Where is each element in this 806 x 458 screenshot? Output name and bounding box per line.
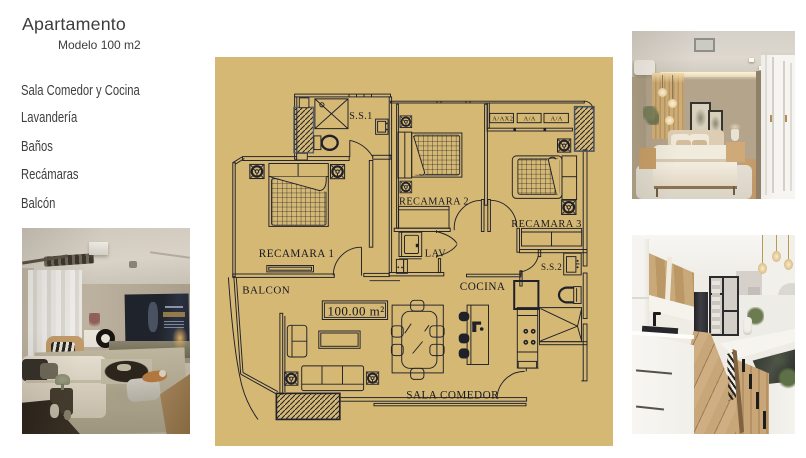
svg-text:SALA COMEDOR: SALA COMEDOR [406,389,499,401]
svg-text:S.S.2: S.S.2 [541,262,562,272]
svg-text:A/AX2: A/AX2 [492,116,513,123]
svg-text:A/A: A/A [551,116,563,123]
svg-text:COCINA: COCINA [460,281,506,293]
svg-text:A/A: A/A [524,116,536,123]
svg-text:BALCON: BALCON [242,285,290,297]
svg-text:S.S.1: S.S.1 [349,111,372,122]
svg-text:100.00 m²: 100.00 m² [328,304,385,319]
svg-text:RECAMARA 3: RECAMARA 3 [511,219,582,230]
svg-text:RECAMARA 1: RECAMARA 1 [259,248,335,260]
svg-text:RECAMARA 2: RECAMARA 2 [399,197,469,208]
svg-text:LAV: LAV [425,249,446,260]
